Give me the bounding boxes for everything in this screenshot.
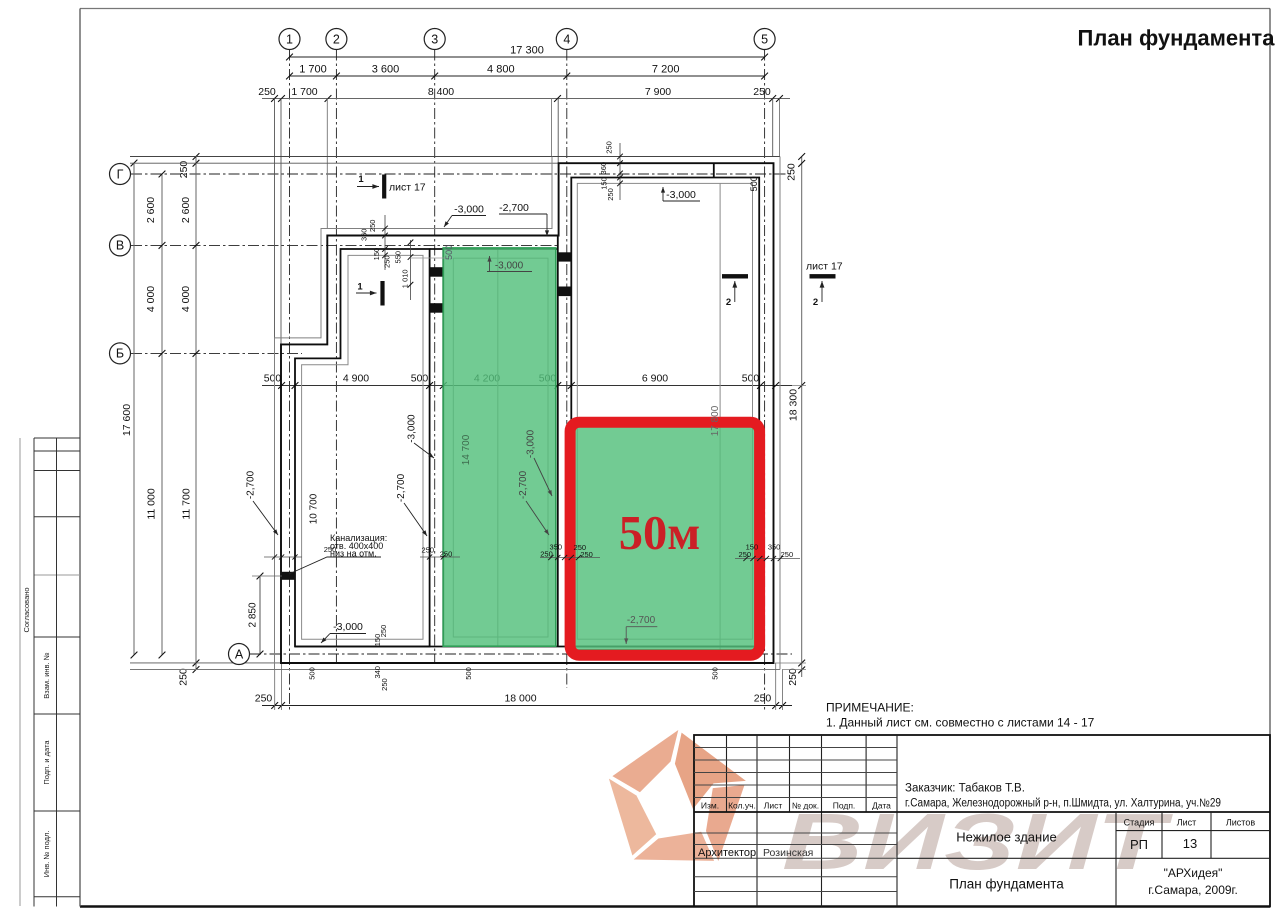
svg-text:-2,700: -2,700 [518,470,529,499]
svg-text:Подп. и дата: Подп. и дата [42,740,51,785]
svg-text:Стадия: Стадия [1124,818,1155,828]
svg-text:г.Самара, 2009г.: г.Самара, 2009г. [1148,883,1238,897]
svg-text:250: 250 [382,255,391,268]
svg-text:250: 250 [605,141,614,154]
svg-text:500: 500 [411,373,429,385]
svg-text:Согласовано: Согласовано [22,587,31,632]
svg-text:250: 250 [324,545,337,554]
svg-text:250: 250 [380,678,389,691]
svg-text:500: 500 [711,667,720,680]
svg-text:7 900: 7 900 [645,86,671,98]
svg-text:Г: Г [117,167,124,181]
svg-text:2 600: 2 600 [145,197,157,223]
svg-text:250: 250 [739,550,752,559]
svg-text:Лист: Лист [1177,818,1197,828]
svg-text:250: 250 [786,163,798,181]
svg-text:6 900: 6 900 [642,373,668,385]
svg-text:5: 5 [761,32,768,46]
svg-text:18 300: 18 300 [788,389,800,421]
svg-text:2 600: 2 600 [180,197,192,223]
svg-text:18 000: 18 000 [504,693,536,705]
svg-text:250: 250 [781,550,794,559]
svg-text:1: 1 [357,282,363,293]
svg-text:500: 500 [444,245,454,260]
svg-text:-3,000: -3,000 [526,429,537,458]
svg-text:10 700: 10 700 [309,493,320,524]
svg-text:250: 250 [379,625,388,638]
svg-text:г.Самара, Железнодорожный р-н,: г.Самара, Железнодорожный р-н, п.Шмидта,… [905,798,1221,810]
svg-text:360: 360 [599,162,608,175]
svg-text:500: 500 [464,667,473,680]
svg-text:Лист: Лист [764,801,783,811]
svg-text:-2,700: -2,700 [627,615,656,626]
svg-text:-3,000: -3,000 [333,621,363,633]
svg-text:Листов: Листов [1226,818,1255,828]
svg-text:-3,000: -3,000 [666,189,696,201]
svg-text:3 600: 3 600 [372,64,400,76]
svg-text:1 700: 1 700 [299,64,327,76]
svg-text:11 700: 11 700 [181,488,193,519]
svg-text:250: 250 [422,546,435,555]
svg-text:250: 250 [787,668,799,686]
svg-text:"АРХидея": "АРХидея" [1164,866,1223,880]
svg-text:Б: Б [116,347,124,361]
svg-text:500: 500 [308,667,317,680]
svg-text:1: 1 [358,174,364,185]
svg-text:1 010: 1 010 [400,269,409,288]
svg-text:Архитектор: Архитектор [698,847,756,859]
svg-text:50м: 50м [619,507,701,560]
svg-text:Розинская: Розинская [763,847,813,859]
svg-text:1. Данный лист см. совместно с: 1. Данный лист см. совместно с листами 1… [826,716,1095,730]
svg-text:3: 3 [431,32,438,46]
svg-text:Инв. № подл.: Инв. № подл. [42,831,51,878]
svg-text:250: 250 [178,668,190,686]
svg-text:250: 250 [255,693,273,705]
svg-text:250: 250 [258,86,276,98]
svg-text:лист 17: лист 17 [389,182,426,194]
svg-text:Заказчик: Табаков Т.В.: Заказчик: Табаков Т.В. [905,783,1025,795]
svg-text:-2,700: -2,700 [396,473,407,502]
svg-text:14 700: 14 700 [461,434,472,465]
svg-text:4: 4 [563,32,570,46]
svg-text:4 000: 4 000 [145,286,157,312]
svg-text:250: 250 [368,220,377,233]
svg-text:340: 340 [373,666,382,679]
svg-text:А: А [235,647,244,661]
svg-text:Изм.: Изм. [701,801,719,811]
svg-text:1: 1 [286,32,293,46]
svg-text:17 600: 17 600 [121,404,133,436]
svg-text:№ док.: № док. [792,801,819,811]
svg-text:4 000: 4 000 [180,286,192,312]
svg-text:500: 500 [742,373,760,385]
svg-text:4 800: 4 800 [487,64,515,76]
svg-text:2: 2 [813,297,818,308]
svg-text:-3,000: -3,000 [495,261,524,272]
svg-text:7 200: 7 200 [652,64,680,76]
svg-text:8 400: 8 400 [428,86,454,98]
svg-text:-3,000: -3,000 [454,204,484,216]
svg-text:4 900: 4 900 [343,373,369,385]
svg-text:250: 250 [754,693,772,705]
svg-text:-2,700: -2,700 [499,202,529,214]
svg-text:низ на отм.: низ на отм. [330,549,377,559]
svg-text:-2,700: -2,700 [245,470,256,499]
svg-text:В: В [116,239,124,253]
svg-text:150: 150 [600,177,609,190]
svg-text:Дата: Дата [872,801,891,811]
svg-text:Подп.: Подп. [833,801,856,811]
svg-text:150: 150 [372,248,381,261]
svg-text:Взам. инв. №: Взам. инв. № [42,652,51,698]
svg-text:17 300: 17 300 [510,45,544,57]
svg-text:17 800: 17 800 [710,405,721,436]
svg-text:11 000: 11 000 [146,488,158,519]
svg-text:ПРИМЕЧАНИЕ:: ПРИМЕЧАНИЕ: [826,701,914,715]
svg-text:500: 500 [264,373,282,385]
svg-text:350: 350 [550,543,563,552]
svg-text:500: 500 [749,176,759,191]
svg-text:2 850: 2 850 [248,602,259,627]
svg-text:План фундамента: План фундамента [949,877,1064,892]
svg-text:550: 550 [394,251,403,264]
svg-text:350: 350 [768,542,781,551]
svg-text:250: 250 [606,188,615,201]
svg-text:лист 17: лист 17 [806,261,843,273]
svg-text:-3,000: -3,000 [406,414,417,443]
svg-text:Нежилое здание: Нежилое здание [956,830,1056,845]
svg-text:360: 360 [359,229,368,242]
svg-text:250: 250 [753,86,771,98]
svg-text:РП: РП [1130,837,1148,852]
svg-text:250: 250 [440,550,453,559]
svg-text:2: 2 [726,297,731,308]
svg-text:План фундамента: План фундамента [1078,26,1276,51]
svg-text:2: 2 [333,32,340,46]
svg-text:13: 13 [1183,836,1197,851]
svg-text:Кол.уч.: Кол.уч. [728,801,756,811]
svg-text:1 700: 1 700 [291,86,317,98]
